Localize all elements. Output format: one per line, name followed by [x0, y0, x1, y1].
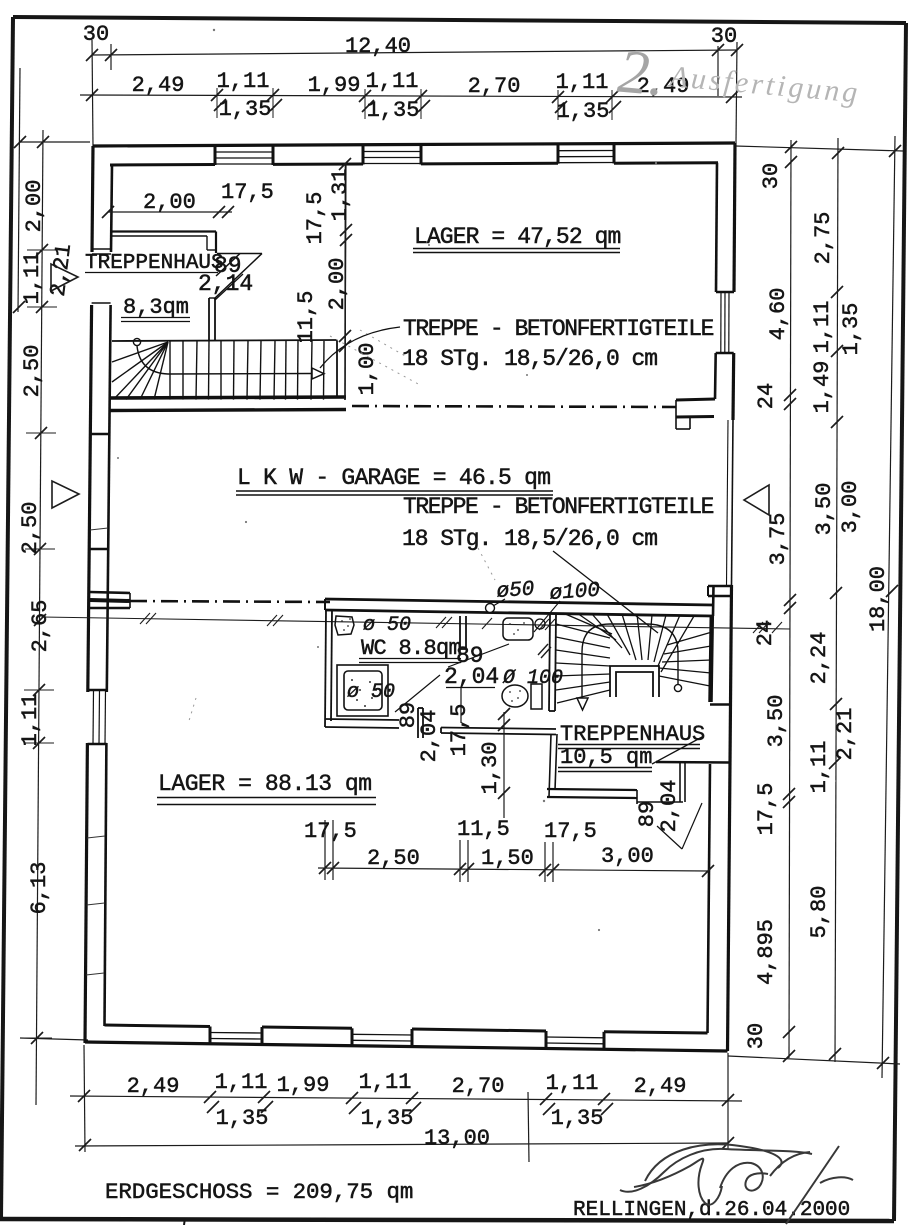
svg-text:2,00: 2,00: [143, 190, 196, 215]
svg-text:1,11: 1,11: [556, 70, 609, 95]
svg-text:2,04: 2,04: [417, 710, 442, 763]
svg-text:2,49: 2,49: [127, 1074, 180, 1099]
svg-text:30: 30: [711, 24, 737, 49]
svg-text:3,75: 3,75: [766, 513, 791, 566]
svg-text:18,00: 18,00: [866, 566, 891, 632]
svg-text:5,80: 5,80: [807, 886, 832, 939]
svg-text:TREPPE - BETONFERTIGTEILE: TREPPE - BETONFERTIGTEILE: [403, 316, 714, 342]
svg-text:2,24: 2,24: [807, 632, 832, 685]
svg-text:11,5: 11,5: [457, 817, 510, 842]
svg-text:8,3qm: 8,3qm: [123, 295, 189, 320]
svg-text:L K W - GARAGE = 46.5 qm: L K W - GARAGE = 46.5 qm: [237, 465, 550, 491]
svg-text:WC 8.8qm: WC 8.8qm: [361, 636, 462, 661]
svg-text:LAGER = 88.13 qm: LAGER = 88.13 qm: [158, 771, 372, 797]
svg-text:2.: 2.: [615, 38, 667, 110]
svg-text:2,49: 2,49: [634, 1074, 687, 1099]
svg-text:30: 30: [744, 1023, 769, 1049]
svg-text:1,11: 1,11: [359, 1070, 412, 1095]
svg-text:2,50: 2,50: [20, 345, 45, 398]
svg-text:2,14: 2,14: [198, 271, 253, 297]
svg-text:ø50: ø50: [496, 578, 535, 604]
svg-text:17,5: 17,5: [447, 704, 472, 757]
svg-text:TREPPENHAUS: TREPPENHAUS: [560, 722, 705, 747]
svg-text:1,35: 1,35: [216, 1106, 269, 1131]
svg-text:1,35: 1,35: [551, 1106, 604, 1131]
svg-text:1,11: 1,11: [810, 301, 835, 354]
svg-text:3,00: 3,00: [601, 844, 654, 869]
svg-text:1,11: 1,11: [18, 694, 43, 747]
svg-text:2,00: 2,00: [22, 180, 47, 233]
svg-text:17,5: 17,5: [754, 783, 779, 836]
svg-text:30: 30: [759, 163, 784, 189]
svg-text:24: 24: [753, 620, 778, 646]
svg-text:2,50: 2,50: [367, 846, 420, 871]
svg-text:1,31: 1,31: [328, 169, 353, 222]
svg-text:2,65: 2,65: [28, 600, 53, 653]
svg-text:ERDGESCHOSS = 209,75 qm: ERDGESCHOSS = 209,75 qm: [105, 1179, 413, 1205]
svg-text:30: 30: [83, 22, 109, 47]
svg-text:1,35: 1,35: [557, 99, 610, 124]
svg-text:1,99: 1,99: [308, 73, 361, 98]
svg-text:1,50: 1,50: [481, 846, 534, 871]
svg-text:1,35: 1,35: [361, 1106, 414, 1131]
svg-text:1,35: 1,35: [367, 98, 420, 123]
svg-text:LAGER = 47,52 qm: LAGER = 47,52 qm: [414, 224, 621, 250]
svg-text:1,99: 1,99: [277, 1073, 330, 1098]
svg-text:2,49: 2,49: [132, 73, 185, 98]
svg-text:3,50: 3,50: [764, 695, 789, 748]
svg-text:24: 24: [754, 383, 779, 409]
svg-text:1,11: 1,11: [20, 252, 45, 305]
svg-text:2,75: 2,75: [811, 212, 836, 265]
svg-text:17,5: 17,5: [544, 819, 597, 844]
svg-text:17,5: 17,5: [304, 819, 357, 844]
svg-text:3,00: 3,00: [838, 481, 863, 534]
svg-text:11,5: 11,5: [294, 291, 319, 344]
svg-text:4,60: 4,60: [766, 288, 791, 341]
svg-text:2,70: 2,70: [452, 1074, 505, 1099]
svg-text:10,5 qm: 10,5 qm: [560, 745, 652, 770]
svg-text:Ø 100: Ø 100: [502, 667, 563, 690]
svg-text:1,35: 1,35: [839, 303, 864, 356]
svg-text:18 STg. 18,5/26,0 cm: 18 STg. 18,5/26,0 cm: [402, 346, 657, 372]
svg-text:13,00: 13,00: [424, 1126, 490, 1151]
svg-text:17,5: 17,5: [303, 192, 328, 245]
svg-text:3,50: 3,50: [812, 483, 837, 536]
svg-text:TREPPE - BETONFERTIGTEILE: TREPPE - BETONFERTIGTEILE: [403, 494, 714, 520]
svg-text:RELLINGEN,d.26.04.2000: RELLINGEN,d.26.04.2000: [573, 1199, 850, 1222]
svg-text:6,13: 6,13: [27, 862, 52, 915]
svg-text:2,50: 2,50: [18, 502, 43, 555]
svg-text:2,04: 2,04: [444, 664, 499, 690]
svg-text:ø 50: ø 50: [363, 614, 411, 637]
svg-text:18 STg. 18,5/26,0 cm: 18 STg. 18,5/26,0 cm: [402, 526, 657, 552]
svg-text:1,49: 1,49: [810, 361, 835, 414]
svg-text:2,70: 2,70: [468, 74, 521, 99]
svg-text:1,11: 1,11: [807, 741, 832, 794]
svg-text:1,00: 1,00: [355, 343, 380, 396]
svg-text:2,00: 2,00: [325, 258, 350, 311]
svg-text:2,04: 2,04: [657, 780, 682, 833]
svg-text:1,11: 1,11: [215, 1070, 268, 1095]
svg-text:1,11: 1,11: [366, 69, 419, 94]
svg-text:12,40: 12,40: [345, 34, 411, 59]
svg-text:ø 50: ø 50: [347, 681, 395, 704]
svg-text:1,11: 1,11: [546, 1071, 599, 1096]
svg-text:1,11: 1,11: [217, 69, 270, 94]
svg-text:1,35: 1,35: [219, 97, 272, 122]
svg-text:1,30: 1,30: [478, 742, 503, 795]
svg-text:17,5: 17,5: [221, 180, 274, 205]
svg-text:2,21: 2,21: [833, 708, 858, 761]
svg-text:4,895: 4,895: [754, 919, 779, 985]
